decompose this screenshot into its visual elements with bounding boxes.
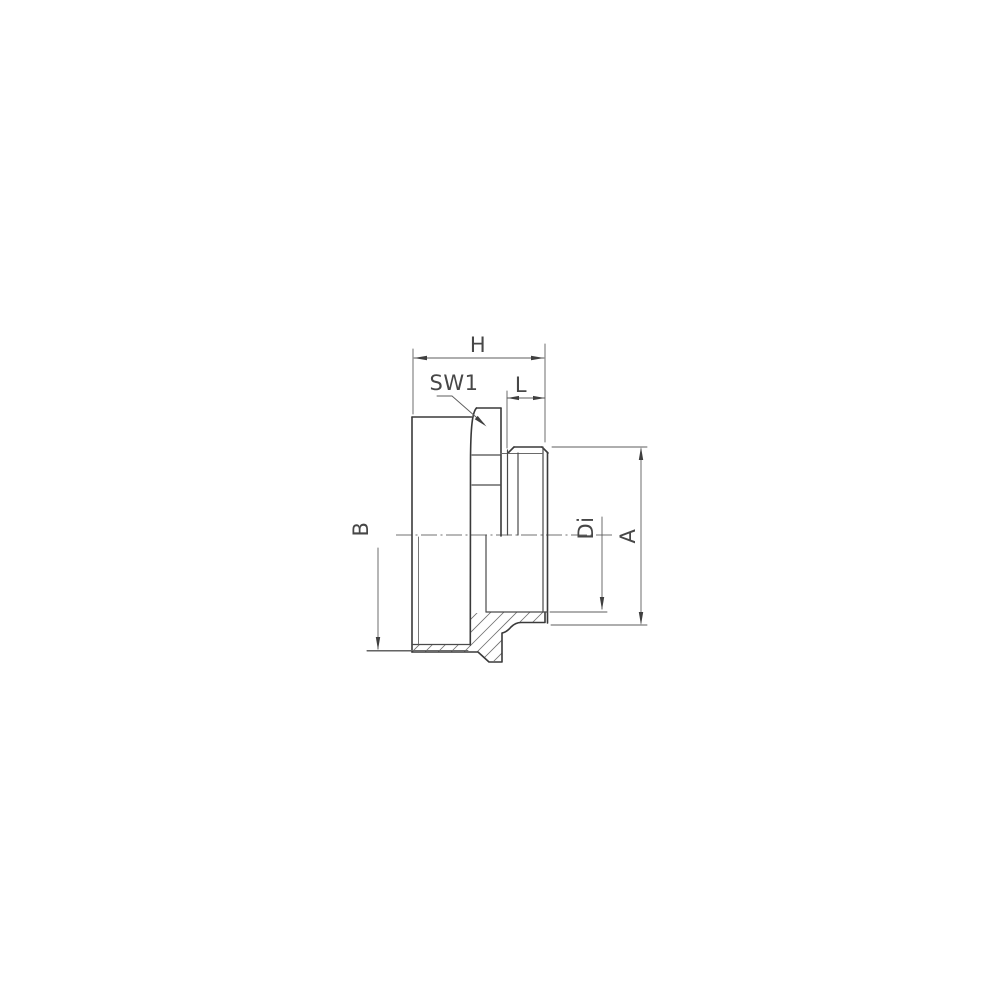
sw1-arrow (475, 416, 487, 427)
label-overall-length: H (470, 333, 486, 357)
section-hatching (325, 530, 664, 700)
l-arrow-right (533, 396, 545, 400)
dimension-l: L (507, 373, 545, 448)
dimension-sw1: SW1 (430, 371, 487, 427)
hex-left-edge (470, 408, 476, 645)
dimension-b: B (349, 522, 411, 651)
label-wrench-size: SW1 (430, 371, 479, 395)
dimension-di: Di (550, 516, 607, 612)
thread-chamfer-left (508, 447, 514, 453)
label-inner-diameter: Di (574, 516, 598, 539)
a-arrow-bottom (639, 612, 643, 625)
h-arrow-left (414, 356, 427, 361)
label-body-thread: B (349, 522, 373, 537)
b-arrow (376, 637, 380, 650)
technical-drawing-canvas: H SW1 L B Di (0, 0, 1000, 1000)
h-arrow-right (531, 356, 544, 361)
a-arrow-top (639, 447, 643, 460)
di-arrow (600, 597, 604, 610)
label-thread-length: L (515, 373, 527, 397)
adapter-fitting-drawing: H SW1 L B Di (0, 0, 1000, 1000)
dimension-a: A (551, 447, 647, 625)
label-outer-diameter: A (616, 528, 640, 543)
